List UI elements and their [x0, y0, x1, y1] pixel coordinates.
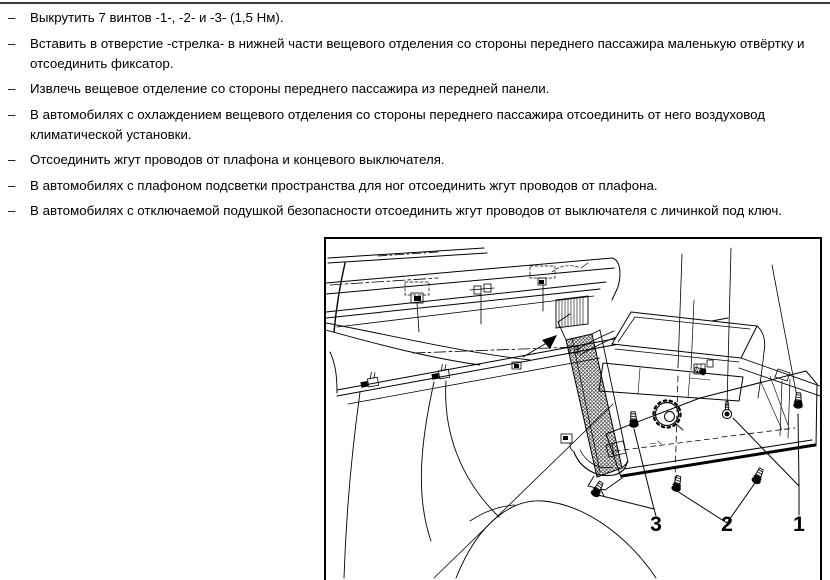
bullet-dash: –: [8, 34, 15, 54]
screw-icon: [751, 467, 766, 486]
bullet-dash: –: [8, 201, 15, 221]
bullet-dash: –: [8, 79, 15, 99]
list-item: – Отсоединить жгут проводов от плафона и…: [8, 150, 822, 170]
list-item: – Вставить в отверстие -стрелка- в нижне…: [8, 34, 822, 74]
list-item: – В автомобилях с отключаемой подушкой б…: [8, 201, 822, 221]
callout-leader-lines: [598, 248, 799, 523]
instruction-text: В автомобилях с плафоном подсветки прост…: [30, 178, 658, 193]
screw-icon: [793, 392, 803, 409]
bullet-dash: –: [8, 8, 15, 28]
instruction-text: В автомобилях с охлаждением вещевого отд…: [30, 107, 765, 142]
figure-frame: 3 2 1: [324, 237, 822, 580]
screw-icon: [628, 411, 639, 428]
list-item: – В автомобилях с плафоном подсветки про…: [8, 176, 822, 196]
list-item: – В автомобилях с охлаждением вещевого о…: [8, 105, 822, 145]
rail-clip-icon: [430, 363, 450, 380]
instruction-text: Извлечь вещевое отделение со стороны пер…: [30, 81, 549, 96]
screw-icon: [671, 475, 684, 493]
callout-label-1: 1: [793, 513, 805, 536]
instruction-text: Выкрутить 7 винтов -1-, -2- и -3- (1,5 Н…: [30, 10, 284, 25]
bullet-dash: –: [8, 176, 15, 196]
page-top-rule: [0, 2, 830, 4]
callout-label-2: 2: [721, 513, 733, 536]
rail-clip-icon: [359, 371, 379, 388]
arrow-icon: [523, 335, 557, 357]
bullet-dash: –: [8, 150, 15, 170]
instruction-text: Вставить в отверстие -стрелка- в нижней …: [30, 36, 804, 71]
grommet-icon: [654, 401, 684, 431]
instruction-text: Отсоединить жгут проводов от плафона и к…: [30, 152, 445, 167]
instruction-list: – Выкрутить 7 винтов -1-, -2- и -3- (1,5…: [8, 8, 822, 227]
callout-labels: 3 2 1: [650, 513, 805, 536]
list-item: – Извлечь вещевое отделение со стороны п…: [8, 79, 822, 99]
list-item: – Выкрутить 7 винтов -1-, -2- и -3- (1,5…: [8, 8, 822, 28]
bullet-dash: –: [8, 105, 15, 125]
glove-box-housing: [599, 300, 820, 401]
figure-illustration: 3 2 1: [326, 239, 820, 580]
callout-label-3: 3: [650, 513, 662, 536]
instruction-text: В автомобилях с отключаемой подушкой без…: [30, 203, 782, 218]
